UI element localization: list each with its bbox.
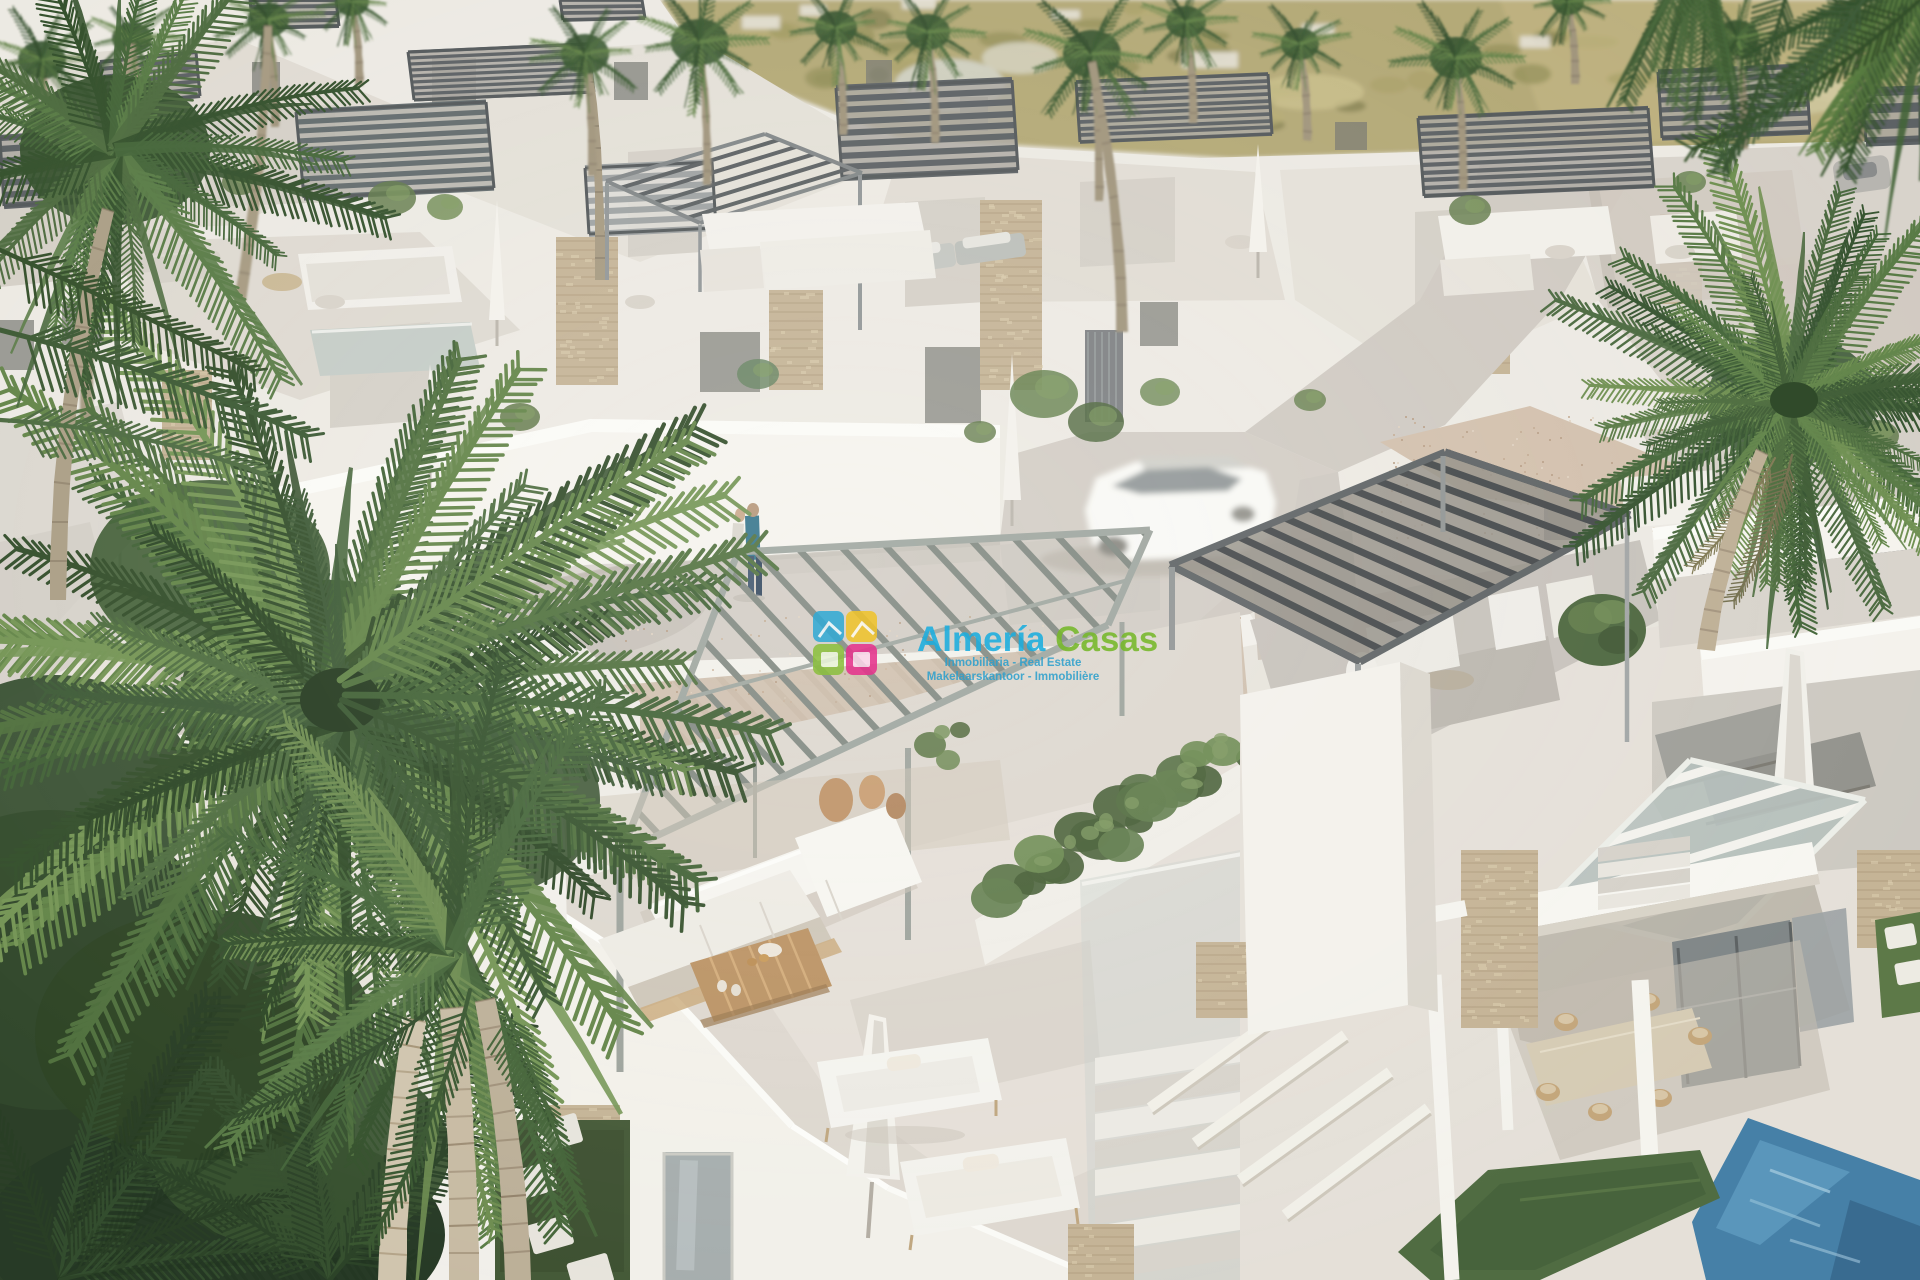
- svg-text:Inmobiliaria - Real Estate: Inmobiliaria - Real Estate: [945, 657, 1082, 669]
- svg-text:Almería Casas: Almería Casas: [917, 620, 1158, 659]
- svg-text:Makelaarskantoor - Immobilière: Makelaarskantoor - Immobilière: [927, 671, 1100, 683]
